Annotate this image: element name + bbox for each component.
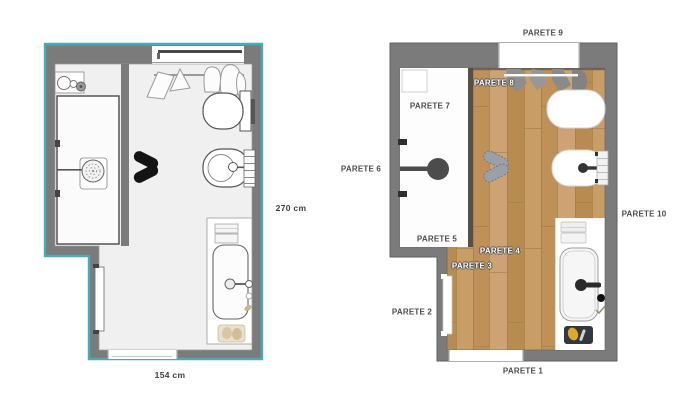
shower-head-icon — [82, 160, 104, 182]
shower — [55, 96, 119, 244]
shower-control — [55, 140, 60, 147]
door — [93, 264, 104, 334]
wall-label-parete-5: PARETE 5 — [417, 235, 457, 244]
bath-mat — [218, 325, 245, 342]
bidet-faucet — [229, 163, 238, 172]
shower-floor — [400, 68, 468, 247]
wood-edge — [473, 68, 605, 70]
window — [152, 46, 244, 64]
vanity-counter — [207, 218, 253, 344]
towel-radiator — [595, 151, 608, 185]
wall-label-parete-10: PARETE 10 — [622, 210, 667, 219]
plan-2d[interactable] — [45, 44, 262, 359]
shower-arm — [57, 169, 82, 171]
wall-label-parete-8: PARETE 8 — [474, 79, 514, 88]
vanity-counter — [555, 218, 605, 350]
towel-rod — [504, 74, 578, 76]
shower-control — [398, 191, 407, 197]
towel-radiator — [244, 150, 255, 187]
wall-label-parete-1: PARETE 1 — [503, 367, 543, 376]
toilet — [547, 90, 605, 128]
wall-niche — [402, 70, 427, 92]
divider-wall — [121, 64, 129, 246]
toilet — [203, 91, 255, 131]
drain-knob — [246, 293, 252, 299]
window-opening — [498, 43, 580, 68]
divider-wall — [468, 68, 473, 247]
floorplans-drawing — [0, 0, 700, 406]
wall-niche — [55, 72, 86, 93]
bidet-faucet — [578, 163, 588, 173]
door-opening — [107, 350, 178, 359]
bath-mat — [564, 326, 593, 344]
shower-control — [55, 190, 60, 197]
door — [441, 274, 452, 336]
dimension-width-label: 154 cm — [155, 370, 186, 380]
wall-label-parete-7: PARETE 7 — [410, 102, 450, 111]
wall-label-parete-2: PARETE 2 — [392, 308, 432, 317]
wall-label-parete-3: PARETE 3 — [452, 262, 492, 271]
cistern — [251, 99, 255, 124]
shower-control — [398, 139, 407, 145]
door-opening — [448, 350, 524, 361]
bidet — [203, 149, 250, 187]
floorplan-canvas: 270 cm 154 cm PARETE 1 PARETE 2 PARETE 3… — [0, 0, 700, 406]
dimension-height-label: 270 cm — [276, 203, 307, 213]
wall-label-parete-6: PARETE 6 — [341, 165, 381, 174]
drain-knob — [597, 294, 605, 302]
wall-label-parete-4: PARETE 4 — [480, 247, 520, 256]
wall-label-parete-9: PARETE 9 — [523, 29, 563, 38]
